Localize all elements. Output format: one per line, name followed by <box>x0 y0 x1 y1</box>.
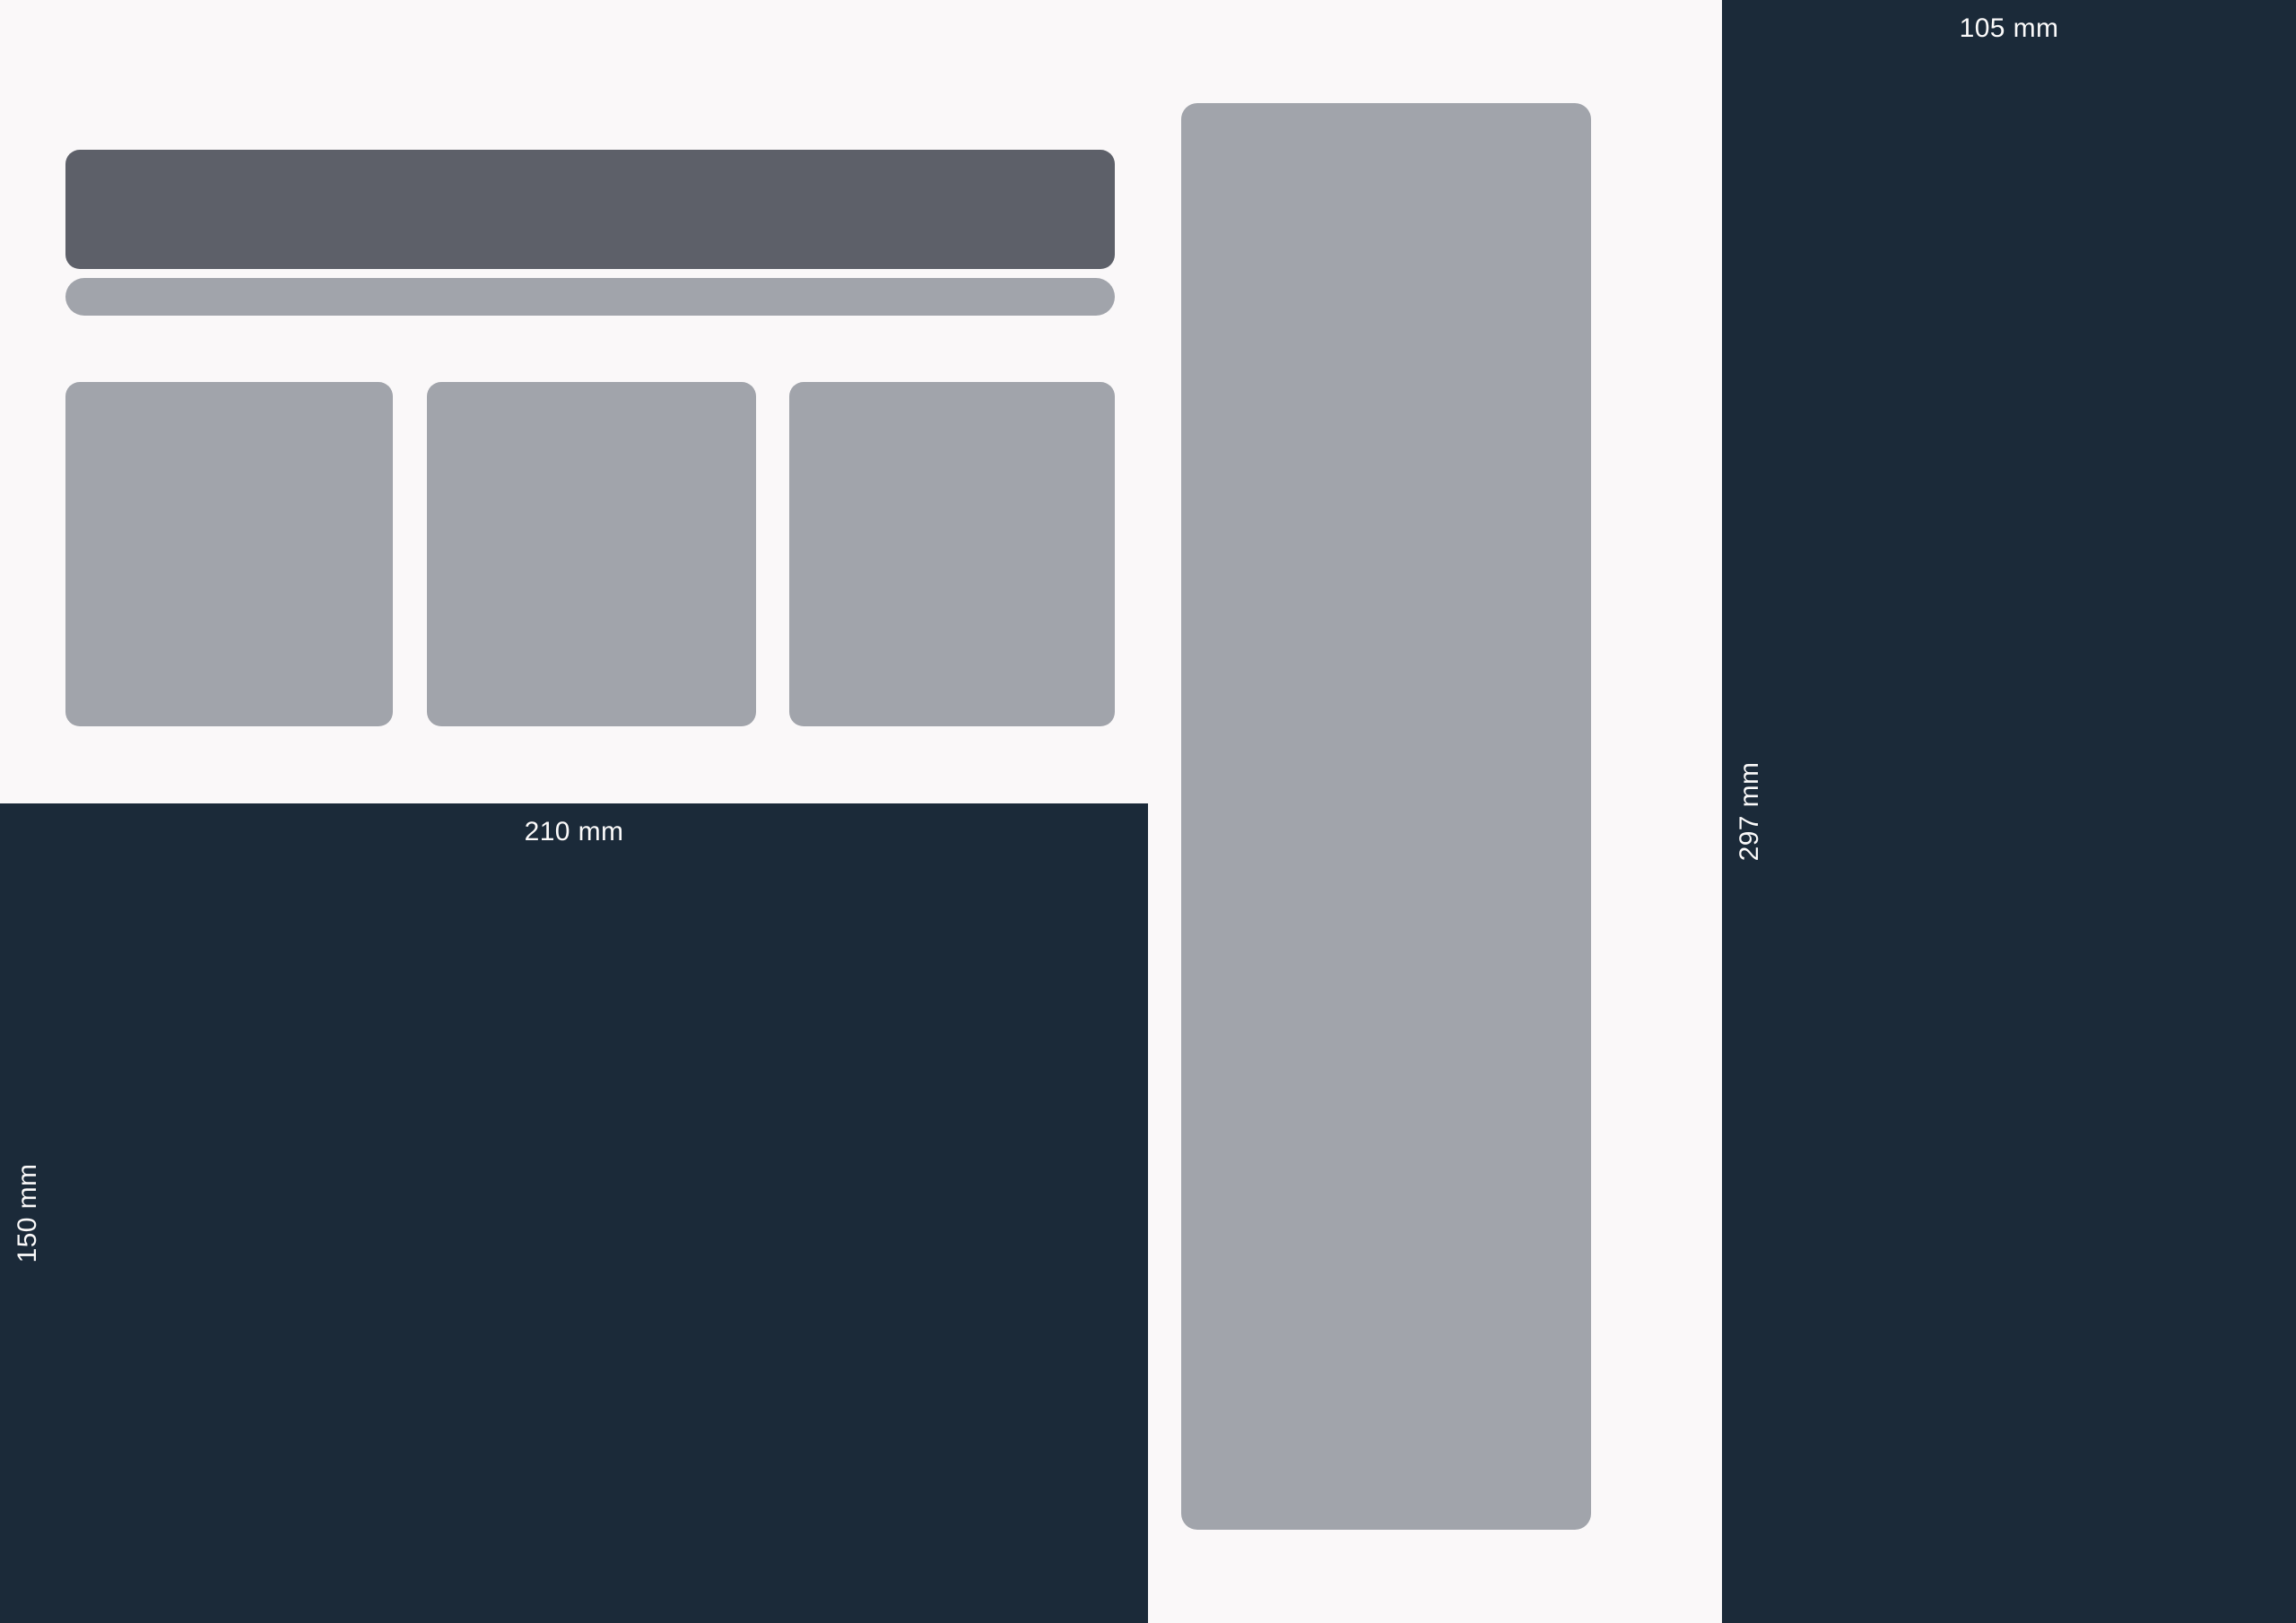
mock-side-column-block <box>1181 103 1591 1530</box>
height-dimension-label: 150 mm <box>13 1164 43 1263</box>
format-size-diagram: 105 mm 297 mm 210 mm 150 mm <box>0 0 2296 1623</box>
dimension-panel-210x150: 210 mm 150 mm <box>0 803 1148 1623</box>
mock-header-block <box>65 150 1115 269</box>
dimension-panel-105x297: 105 mm 297 mm <box>1722 0 2296 1623</box>
width-dimension-label: 105 mm <box>1722 13 2296 44</box>
height-dimension-label: 297 mm <box>1735 762 1765 862</box>
mock-card-block <box>427 382 756 726</box>
mock-subheader-bar-block <box>65 278 1115 316</box>
width-dimension-label: 210 mm <box>0 817 1148 847</box>
mock-card-block <box>789 382 1115 726</box>
mock-card-block <box>65 382 393 726</box>
